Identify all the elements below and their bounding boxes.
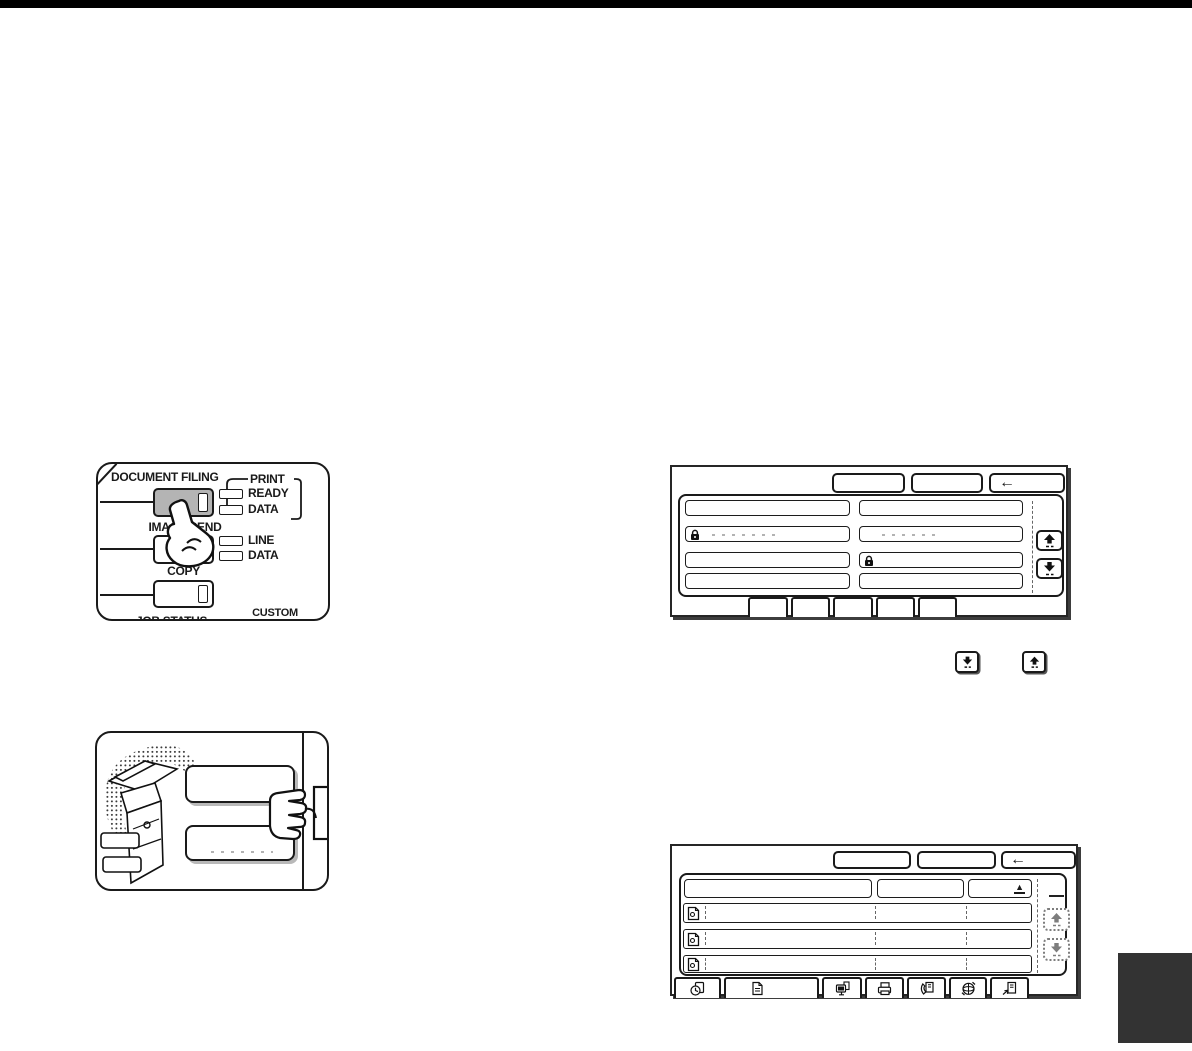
column-divider	[966, 958, 967, 970]
column-header-file-name[interactable]	[684, 879, 872, 898]
folder-key[interactable]	[859, 500, 1023, 516]
folder-key-locked[interactable]	[859, 552, 1023, 568]
column-header-user[interactable]	[877, 879, 964, 898]
back-key[interactable]: ←	[1001, 851, 1076, 869]
folder-key[interactable]	[859, 573, 1023, 589]
screen-tab[interactable]	[791, 597, 830, 617]
back-arrow-icon: ←	[999, 475, 1015, 491]
screen-key[interactable]	[833, 851, 911, 869]
callout-line	[100, 501, 153, 503]
tab-fax-jobs[interactable]	[907, 977, 946, 998]
column-divider	[966, 932, 967, 945]
scroll-down-key[interactable]	[1043, 938, 1070, 961]
pc-fax-icon	[1002, 981, 1017, 996]
file-icon	[687, 932, 700, 947]
screen-tab[interactable]	[748, 597, 788, 617]
inline-scroll-up-key[interactable]	[1022, 651, 1046, 673]
file-icon	[687, 906, 700, 921]
column-divider	[705, 958, 706, 970]
touch-screen-folder-select: ←	[670, 465, 1068, 617]
column-divider	[705, 932, 706, 945]
page-corner-tab	[1118, 953, 1192, 1043]
folder-key[interactable]	[859, 526, 1023, 542]
faded-text-dots	[712, 534, 782, 536]
scroll-up-icon	[1050, 913, 1063, 927]
tab-main-folder[interactable]	[724, 977, 819, 998]
document-filing-label: DOCUMENT FILING	[111, 471, 219, 484]
file-row[interactable]	[683, 929, 1032, 949]
scroll-divider	[1032, 501, 1033, 593]
file-list-area: ▲	[679, 873, 1067, 976]
pointing-hand-icon	[151, 498, 225, 574]
custom-settings-label2: SETTINGS	[241, 619, 309, 621]
column-header-date[interactable]: ▲	[968, 879, 1032, 898]
faded-text-dots	[211, 851, 273, 853]
screen-tab[interactable]	[833, 597, 873, 617]
screen-key[interactable]	[917, 851, 996, 869]
manual-page: DOCUMENT FILING IMAGE SEND COPY JOB STAT…	[0, 0, 1192, 1051]
file-row[interactable]	[683, 903, 1032, 923]
print-ready-label: READY	[248, 487, 289, 500]
scroll-up-key[interactable]	[1043, 908, 1070, 931]
fax-icon	[919, 981, 934, 996]
send-data-label: DATA	[248, 549, 278, 562]
internet-fax-icon	[961, 981, 976, 996]
back-key[interactable]: ←	[989, 473, 1065, 493]
column-divider	[705, 906, 706, 919]
callout-line	[100, 594, 153, 596]
back-arrow-icon: ←	[1010, 852, 1026, 868]
scroll-up-icon	[1043, 534, 1056, 548]
tab-quick-file[interactable]	[674, 977, 721, 998]
pressing-hand-icon	[267, 781, 329, 843]
scroll-down-icon	[1043, 562, 1056, 576]
callout-line	[100, 548, 153, 550]
screen-tab[interactable]	[876, 597, 915, 617]
screen-tab[interactable]	[918, 597, 957, 617]
folder-key[interactable]	[685, 573, 850, 589]
screen-key[interactable]	[911, 473, 983, 493]
print-group-bracket	[222, 475, 306, 525]
printer-icon	[877, 981, 892, 996]
document-icon	[750, 981, 765, 996]
tab-copy-jobs[interactable]	[865, 977, 904, 998]
tab-pc-fax-jobs[interactable]	[990, 977, 1029, 998]
inline-scroll-down-key[interactable]	[955, 651, 979, 673]
line-label: LINE	[248, 534, 274, 547]
scroll-divider	[1037, 879, 1038, 973]
scroll-down-key[interactable]	[1036, 558, 1063, 579]
lock-icon	[690, 529, 700, 541]
control-panel-figure: DOCUMENT FILING IMAGE SEND COPY JOB STAT…	[96, 462, 330, 621]
file-row[interactable]	[683, 955, 1032, 973]
pc-icon	[835, 981, 850, 996]
scroll-up-icon	[1029, 656, 1040, 669]
scroll-up-key[interactable]	[1036, 530, 1063, 551]
column-divider	[875, 958, 876, 970]
job-status-label: JOB STATUS	[136, 615, 207, 621]
copy-key[interactable]	[153, 580, 214, 608]
folder-list-area	[678, 494, 1064, 597]
folder-key[interactable]	[685, 552, 850, 568]
page-header-bar	[0, 0, 1192, 8]
tab-print-jobs[interactable]	[822, 977, 862, 998]
screen-key[interactable]	[832, 473, 905, 493]
column-divider	[966, 906, 967, 919]
copier-illustration	[97, 737, 207, 891]
file-icon	[687, 957, 700, 972]
quick-file-icon	[690, 981, 705, 996]
machine-detail-figure	[95, 731, 329, 891]
column-divider	[875, 906, 876, 919]
scroll-down-icon	[962, 656, 973, 669]
touch-screen-file-list: ← ▲	[670, 844, 1078, 996]
key-indicator	[198, 585, 208, 603]
faded-text-dots	[882, 534, 942, 536]
sort-ascending-icon: ▲	[1014, 882, 1025, 894]
lock-icon	[864, 555, 874, 567]
list-position-mark	[1049, 895, 1064, 897]
column-divider	[875, 932, 876, 945]
scroll-down-icon	[1050, 943, 1063, 957]
folder-key[interactable]	[685, 500, 850, 516]
print-data-label: DATA	[248, 503, 278, 516]
tab-internet-fax-jobs[interactable]	[949, 977, 987, 998]
folder-key-locked[interactable]	[685, 526, 850, 542]
